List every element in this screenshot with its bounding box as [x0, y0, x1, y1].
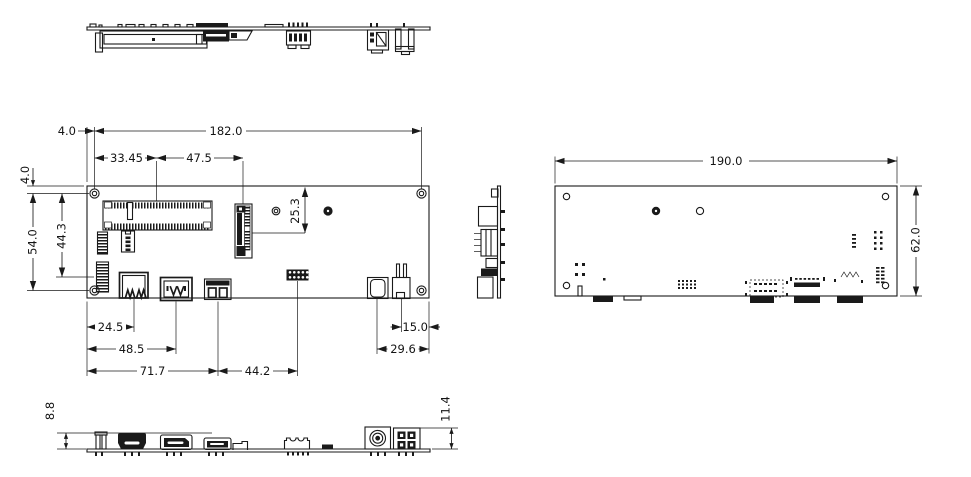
front-dimensions: 8.8 11.4 [43, 396, 458, 449]
dim-edge-to-hole-v: 4.0 [18, 166, 33, 186]
top-edge-view [87, 23, 430, 55]
side-header [474, 230, 498, 257]
dim-hole-span-h: 182.0 [95, 124, 422, 138]
dim-label-board-width: 190.0 [710, 154, 743, 168]
dim-label-power-height: 11.4 [439, 396, 453, 422]
dim-label-power-offset: 15.0 [402, 320, 428, 334]
smd-parts-top [90, 23, 405, 28]
front-smd-part [322, 445, 333, 450]
dim-edge-to-m2: 25.3 [252, 188, 306, 234]
hdmi-port-front [118, 433, 146, 449]
technical-drawing-page: 4.0 182.0 33.45 47.5 [0, 0, 971, 477]
dim-hole-to-header: 44.3 [55, 194, 69, 278]
dim-usb-offset: 24.5 [87, 320, 134, 334]
dim-board-width: 190.0 [555, 154, 897, 168]
bottom-ref-holes [652, 207, 704, 215]
side-edge-view [474, 186, 505, 298]
bottom-edge-connectors [593, 296, 863, 303]
pad-cluster-footprint [745, 280, 788, 297]
bottom-corner-holes [563, 193, 888, 288]
side-smd-ticks [501, 210, 505, 281]
dim-label-hole-to-header: 44.3 [55, 223, 69, 249]
pad-cluster-zigzag [834, 272, 863, 283]
dim-power-offset: 15.0 [391, 320, 441, 334]
power-connector-profile [396, 29, 415, 55]
pin-header-4pin [97, 262, 109, 292]
dim-io-height: 8.8 [43, 402, 66, 449]
usb-stack-connector [120, 273, 149, 299]
dc-jack [368, 278, 389, 299]
bottom-dimensions: 190.0 62.0 [555, 154, 923, 296]
plan-dimensions: 4.0 182.0 33.45 47.5 [18, 124, 440, 378]
dim-label-sodimm-to-m2: 47.5 [186, 151, 212, 165]
dim-sodimm-to-m2: 47.5 [157, 151, 244, 165]
dim-label-hole-span-v: 54.0 [26, 229, 40, 255]
front-edge-view: 8.8 11.4 [43, 396, 458, 456]
dim-label-edge-to-hole-v: 4.0 [18, 166, 32, 184]
displayport-front [161, 435, 193, 450]
dim-label-io-height: 8.8 [43, 402, 57, 420]
pad-cluster-left [575, 263, 606, 296]
dim-hole-to-sodimm: 33.45 [95, 151, 157, 165]
ref-hole-open [272, 207, 280, 215]
wafer-connector-4pin [122, 231, 135, 252]
dim-label-dp-offset: 48.5 [119, 342, 145, 356]
latch-connector-front [285, 438, 310, 449]
dual-port-connector [205, 279, 232, 300]
box-header-profile [287, 31, 311, 49]
dc-jack-front [365, 427, 391, 449]
sodimm-socket [103, 201, 212, 230]
dim-label-dcjack-offset: 29.6 [390, 342, 416, 356]
m2-socket-profile [203, 31, 252, 42]
front-step-connector [233, 442, 248, 450]
pad-cluster-right [852, 231, 885, 283]
dim-label-edge-to-hole-h: 4.0 [58, 124, 76, 138]
box-header-2x5 [287, 270, 309, 281]
dim-dp-offset: 48.5 [87, 342, 176, 356]
bottom-view: 190.0 62.0 [555, 154, 923, 303]
plan-view: 4.0 182.0 33.45 47.5 [18, 124, 440, 378]
dim-label-usb3-offset: 71.7 [140, 364, 166, 378]
dim-dcjack-offset: 29.6 [377, 342, 429, 356]
dim-label-edge-to-m2: 25.3 [288, 198, 302, 224]
dim-power-height: 11.4 [439, 396, 453, 449]
dim-label-board-height: 62.0 [909, 227, 923, 253]
dim-label-header-offset: 44.2 [245, 364, 271, 378]
dc-jack-profile [368, 30, 389, 53]
pad-cluster-bar [790, 277, 825, 287]
pad-cluster-mid [678, 280, 696, 289]
dim-header-offset: 44.2 [218, 364, 298, 378]
power-connector-front [394, 428, 421, 449]
ref-hole-filled [323, 206, 332, 215]
bottom-board-outline [555, 186, 897, 296]
dim-edge-to-hole-h: 4.0 [58, 124, 95, 138]
front-small-connector [95, 432, 107, 449]
dim-usb3-offset: 71.7 [87, 364, 218, 378]
m2-connector [235, 204, 252, 258]
hdmi-port-2-front [204, 438, 231, 450]
dim-label-hole-span-h: 182.0 [210, 124, 243, 138]
dim-hole-span-v: 54.0 [26, 194, 40, 291]
dim-board-height: 62.0 [909, 186, 923, 296]
power-connector-4pin [393, 264, 411, 299]
board-dimension-drawing: 4.0 182.0 33.45 47.5 [0, 0, 971, 477]
dim-label-usb-offset: 24.5 [98, 320, 124, 334]
dim-label-hole-to-sodimm: 33.45 [110, 151, 143, 165]
solder-tails [95, 452, 414, 456]
display-connector [161, 278, 193, 301]
sodimm-socket-profile [96, 31, 208, 52]
pin-header-small [98, 232, 108, 254]
